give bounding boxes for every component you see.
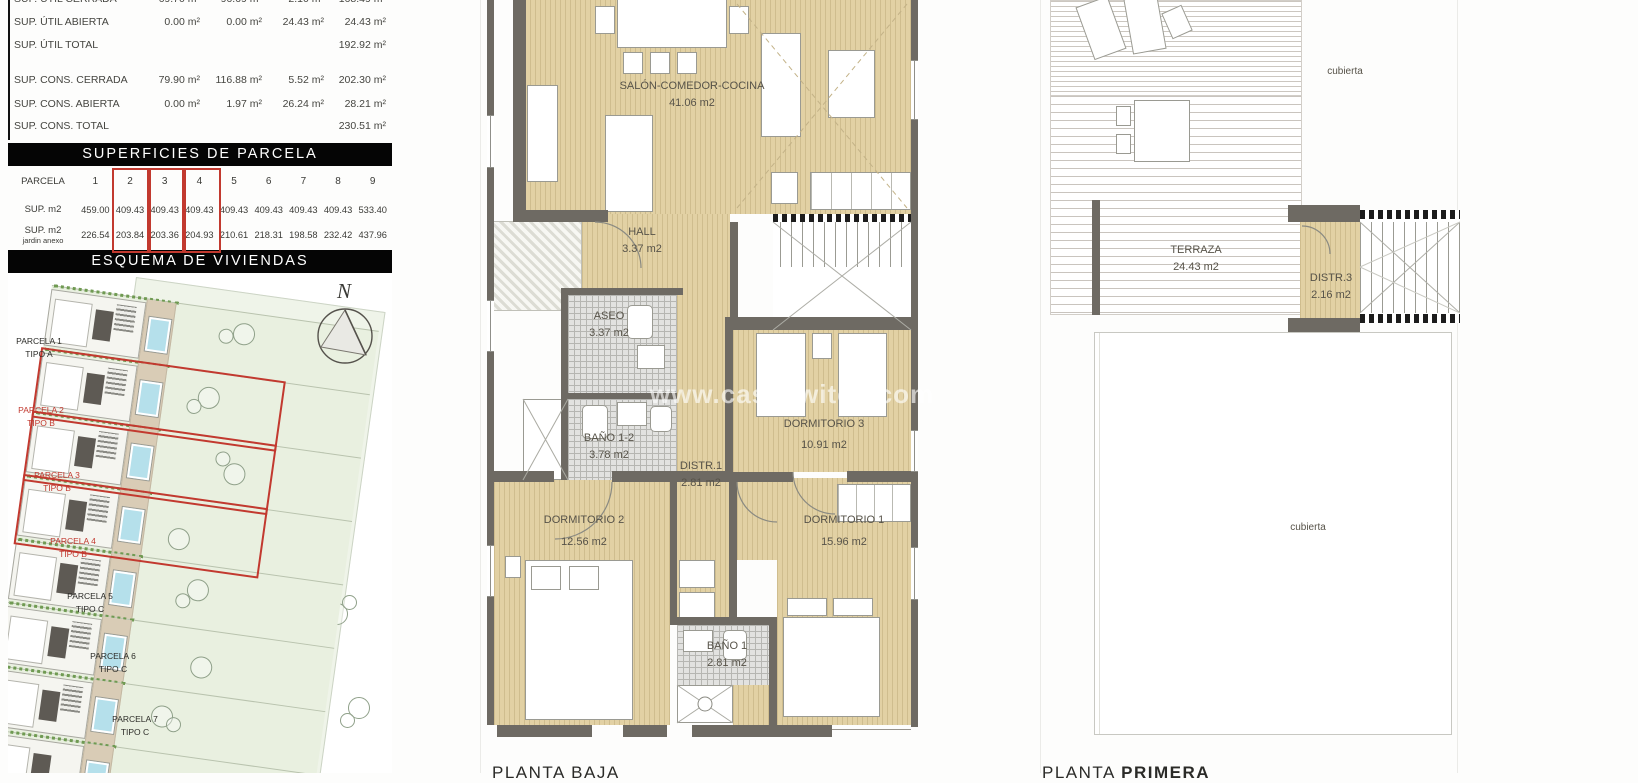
cell: 1.97 m²: [200, 98, 262, 114]
parcel-tipo: TIPO C: [55, 603, 125, 616]
cell: 192.92 m²: [324, 39, 386, 55]
stair-treads: [1360, 222, 1460, 313]
cell: 409.43: [251, 205, 286, 215]
cell: 26.24 m²: [262, 98, 324, 114]
pool: [145, 317, 172, 354]
room-label-dorm3: DORMITORIO 3: [784, 418, 864, 430]
cell: 2.10 m²: [262, 0, 324, 9]
wall-line: [832, 729, 911, 730]
cell: 8: [321, 176, 356, 187]
cell: 459.00: [78, 205, 113, 215]
cell: [262, 120, 324, 136]
parcel-tipo: TIPO B: [22, 482, 92, 495]
parcel-name: PARCELA 4: [38, 535, 108, 548]
table-row: SUP. CONS. ABIERTA 0.00 m² 1.97 m² 26.24…: [14, 98, 386, 114]
cell: 0.00 m²: [138, 98, 200, 114]
highlight-box-col2: [112, 168, 151, 253]
wall: [513, 210, 608, 222]
parcel-name: PARCELA 7: [100, 713, 170, 726]
table-row: SUP. CONS. TOTAL 230.51 m²: [14, 120, 386, 136]
window: [487, 300, 494, 352]
pillow: [569, 566, 599, 590]
cell: 0.00 m²: [138, 16, 200, 32]
wall: [769, 617, 777, 725]
parcel-name: PARCELA 3: [22, 469, 92, 482]
room-area-salon: 41.06 m2: [669, 97, 715, 109]
parcel-tipo: TIPO B: [8, 417, 76, 430]
cell: 69.70 m²: [138, 0, 200, 9]
parcel-tipo: TIPO A: [8, 348, 74, 361]
esquema-title: ESQUEMA DE VIVIENDAS: [8, 250, 392, 273]
window: [911, 430, 918, 472]
cell: 409.43: [286, 205, 321, 215]
planta-primera-plan: TERRAZA 24.43 m2 DISTR.3 2.16 m2 cubiert…: [1048, 0, 1460, 762]
highlight-box-col4: [182, 168, 221, 253]
stair-treads: [780, 222, 911, 267]
parcel-name: PARCELA 1: [8, 335, 74, 348]
wall: [513, 0, 526, 210]
cell: 1: [78, 176, 113, 187]
cell: 226.54: [78, 230, 113, 240]
parcel-tipo: TIPO C: [78, 663, 148, 676]
cabinet: [771, 172, 798, 204]
room-area-dorm3: 10.91 m2: [801, 439, 847, 451]
wall: [1092, 200, 1100, 315]
wall: [487, 0, 494, 725]
cell: 7: [286, 176, 321, 187]
window: [487, 545, 494, 597]
kitchen-island: [605, 115, 653, 212]
cell: [200, 39, 262, 55]
cell: 218.31: [251, 230, 286, 240]
room-label-aseo: ASEO: [594, 310, 625, 322]
parcel-label-5: PARCELA 5 TIPO C: [55, 590, 125, 616]
house-room: [8, 679, 39, 728]
kitchen-counter: [527, 85, 558, 182]
cell: 24.43 m²: [262, 16, 324, 32]
pillow: [833, 598, 873, 616]
wall: [561, 295, 568, 480]
cell: 409.43: [321, 205, 356, 215]
room-area-aseo: 3.37 m2: [589, 327, 629, 339]
chair: [729, 6, 749, 34]
cell: 6: [251, 176, 286, 187]
wall: [692, 725, 832, 737]
room-area-hall: 3.37 m2: [622, 243, 662, 255]
dining-table: [617, 0, 727, 48]
room-label-dorm2: DORMITORIO 2: [544, 514, 624, 526]
cell: 96.69 m²: [200, 0, 262, 9]
caption-planta-primera: PLANTA PRIMERA: [1042, 763, 1210, 783]
chair: [1116, 134, 1131, 154]
house-room: [8, 615, 48, 664]
row-label: SUP. ÚTIL CERRADA: [14, 0, 138, 9]
roof-hatch: [113, 304, 136, 333]
cell: 79.90 m²: [138, 74, 200, 90]
floor-distr3: [1300, 222, 1360, 318]
caption-planta-baja: PLANTA BAJA: [492, 763, 620, 783]
tree-icon: [218, 328, 235, 345]
parcel-label-6: PARCELA 6 TIPO C: [78, 650, 148, 676]
tree-icon: [342, 595, 357, 610]
table-row: SUP. ÚTIL TOTAL 192.92 m²: [14, 39, 386, 55]
stair-rail: [1360, 210, 1460, 219]
chair: [1116, 106, 1131, 126]
table-row: SUP. CONS. CERRADA 79.90 m² 116.88 m² 5.…: [14, 74, 386, 90]
wall: [623, 725, 667, 737]
house: [8, 669, 93, 739]
garage: [38, 690, 60, 722]
parcel-tipo: TIPO B: [38, 548, 108, 561]
wall: [730, 222, 738, 317]
room-label-bano1: BAÑO 1: [707, 640, 747, 652]
room-area-terraza: 24.43 m2: [1173, 261, 1219, 273]
table-row: SUP. ÚTIL CERRADA 69.70 m² 96.69 m² 2.10…: [14, 0, 386, 9]
row-label: SUP. CONS. TOTAL: [14, 120, 138, 136]
cell: 409.43: [217, 205, 252, 215]
shower: [677, 685, 733, 723]
floorplan-document: { "surface_table": { "rows": [ {"label":…: [0, 0, 1638, 773]
parcel-label-4: PARCELA 4 TIPO B: [38, 535, 108, 561]
chair: [650, 52, 670, 74]
pillow: [531, 566, 561, 590]
sofa: [761, 33, 801, 137]
compass-north-label: N: [304, 279, 384, 304]
window: [487, 115, 494, 168]
sink: [637, 345, 665, 369]
room-label-distr3: DISTR.3: [1310, 272, 1352, 284]
row-label: SUP. CONS. CERRADA: [14, 74, 138, 90]
garage: [47, 626, 69, 658]
parcel-name: PARCELA 6: [78, 650, 148, 663]
row-label: SUP. m2: [10, 225, 76, 236]
site-plan: PARCELA 1 TIPO A PARCELA 2 TIPO B PARCEL…: [8, 273, 392, 773]
table-left-rule: [8, 0, 10, 140]
parcel-name: PARCELA 2: [8, 404, 76, 417]
row-label: SUP. m2: [10, 204, 76, 215]
roof-hatch: [69, 621, 92, 650]
tree-icon: [340, 713, 355, 728]
cubierta-label-main: cubierta: [1290, 522, 1326, 533]
watermark: www.casaswitch.com: [616, 379, 968, 410]
table-row: SUP. ÚTIL ABIERTA 0.00 m² 0.00 m² 24.43 …: [14, 16, 386, 32]
cell: 5: [217, 176, 252, 187]
pillow: [787, 598, 827, 616]
cell: 202.30 m²: [324, 74, 386, 90]
floor-strip: [733, 685, 769, 725]
window: [911, 547, 918, 600]
cell: 437.96: [355, 230, 390, 240]
cell: 116.88 m²: [200, 74, 262, 90]
parcel-label-2: PARCELA 2 TIPO B: [8, 404, 76, 430]
garage: [30, 753, 52, 773]
row-sublabel: jardin anexo: [10, 236, 76, 245]
wall: [670, 617, 777, 625]
room-area-bano1: 2.81 m2: [707, 657, 747, 669]
wall: [725, 317, 917, 330]
cell: 168.49 m²: [324, 0, 386, 9]
nightstand: [505, 556, 521, 578]
sheet-divider: [480, 0, 481, 773]
tree-icon: [189, 655, 214, 680]
room-label-distr1: DISTR.1: [680, 460, 722, 472]
roof-hatch: [78, 558, 101, 587]
room-label-hall: HALL: [628, 226, 656, 238]
window: [911, 60, 918, 120]
cell: 533.40: [355, 205, 390, 215]
parcela-table-title: SUPERFICIES DE PARCELA: [8, 143, 392, 166]
compass-icon: N: [304, 279, 384, 375]
kitchen-counter: [810, 172, 911, 210]
room-label-terraza: TERRAZA: [1170, 244, 1221, 256]
chair: [595, 6, 615, 34]
room-area-distr3: 2.16 m2: [1311, 289, 1351, 301]
wall: [670, 478, 677, 617]
cubierta-label-top: cubierta: [1327, 66, 1363, 77]
wall: [1288, 205, 1360, 222]
row-label: SUP. ÚTIL TOTAL: [14, 39, 138, 55]
wall: [1288, 318, 1360, 332]
wall: [497, 725, 592, 737]
cubierta-room: [1094, 332, 1452, 735]
room-label-bano12: BAÑO 1-2: [584, 432, 634, 444]
sheet-divider: [1040, 0, 1041, 773]
toilet: [627, 305, 653, 339]
room-area-bano12: 3.78 m2: [589, 449, 629, 461]
bed: [783, 617, 880, 717]
parcel-label-1: PARCELA 1 TIPO A: [8, 335, 74, 361]
roof-hatch: [60, 684, 83, 713]
cell: 230.51 m²: [324, 120, 386, 136]
cell: 9: [355, 176, 390, 187]
cell: 5.52 m²: [262, 74, 324, 90]
highlight-box-col3: [147, 168, 186, 253]
cell: 198.58: [286, 230, 321, 240]
cell: 28.21 m²: [324, 98, 386, 114]
armchair: [828, 50, 875, 118]
wall: [847, 471, 911, 482]
tree-icon: [232, 322, 257, 347]
chair: [677, 52, 697, 74]
parcel-name: PARCELA 5: [55, 590, 125, 603]
nightstand: [812, 333, 832, 359]
parcel-tipo: TIPO C: [100, 726, 170, 739]
cell: [200, 120, 262, 136]
parcel-label-7: PARCELA 7 TIPO C: [100, 713, 170, 739]
cell: 0.00 m²: [200, 16, 262, 32]
wall: [494, 471, 554, 482]
room-label-dorm1: DORMITORIO 1: [804, 514, 884, 526]
floor-dorm1: [737, 478, 777, 560]
cell: [138, 120, 200, 136]
row-label: PARCELA: [10, 176, 76, 187]
garage: [92, 309, 114, 341]
summary-panel: SUP. ÚTIL CERRADA 69.70 m² 96.69 m² 2.10…: [0, 0, 400, 773]
wall: [561, 288, 683, 295]
stair-rail: [773, 214, 911, 222]
pool: [82, 761, 109, 773]
row-label: SUP. CONS. ABIERTA: [14, 98, 138, 114]
wardrobe: [679, 560, 715, 588]
chair: [623, 52, 643, 74]
stair-rail: [1360, 314, 1460, 323]
room-area-dorm2: 12.56 m2: [561, 536, 607, 548]
outdoor-table: [1134, 100, 1190, 162]
cell: [262, 39, 324, 55]
wall: [729, 478, 737, 617]
cell: [138, 39, 200, 55]
cell: 24.43 m²: [324, 16, 386, 32]
parcel-label-3: PARCELA 3 TIPO B: [22, 469, 92, 495]
room-area-dorm1: 15.96 m2: [821, 536, 867, 548]
row-label: SUP. ÚTIL ABIERTA: [14, 16, 138, 32]
room-area-distr1: 2.81 m2: [681, 477, 721, 489]
cubierta-room-inner-line: [1099, 333, 1100, 734]
cell: 232.42: [321, 230, 356, 240]
house-room: [8, 742, 30, 773]
room-label-salon: SALÓN-COMEDOR-COCINA: [620, 80, 765, 92]
cell: 210.61: [217, 230, 252, 240]
